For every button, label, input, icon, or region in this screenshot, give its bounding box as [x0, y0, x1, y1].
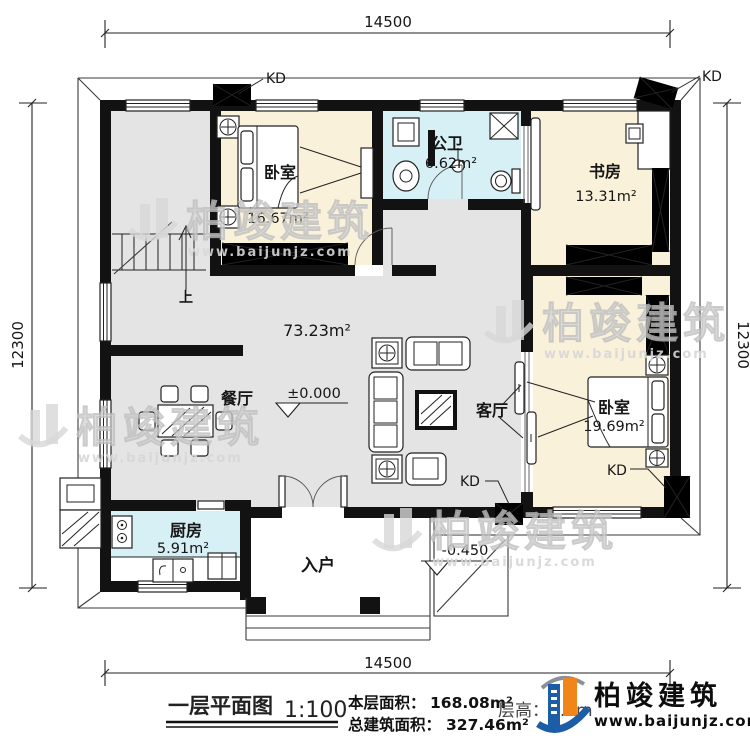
study-closet-south — [566, 245, 652, 265]
svg-text:柏竣建筑: 柏竣建筑 — [430, 507, 618, 556]
plan-scale: 1:100 — [284, 698, 347, 723]
pillow — [241, 131, 253, 164]
stairs-up-label: 上 — [179, 290, 193, 306]
kitchen-area: 5.91m² — [157, 541, 209, 557]
dim-bottom: 14500 — [364, 654, 412, 672]
window-dining-left-upper — [100, 283, 111, 341]
svg-text:www.baijunjz.com: www.baijunjz.com — [188, 245, 353, 260]
plant-table — [372, 455, 402, 483]
kd-label: KD — [607, 463, 627, 479]
study-closet-east — [652, 168, 669, 252]
study-area: 13.31m² — [575, 189, 636, 205]
svg-text:柏竣建筑: 柏竣建筑 — [542, 299, 730, 348]
plan-title: 一层平面图 — [168, 694, 273, 718]
sofa-three-seat — [369, 372, 403, 452]
window-stairhall — [126, 100, 190, 111]
bedroom2-area: 19.69m² — [583, 419, 644, 435]
level-value: ±0.000 — [287, 386, 341, 402]
watermark: 柏竣建筑 www.baijunjz.com — [20, 403, 264, 466]
dresser — [361, 148, 373, 198]
washbasin — [393, 161, 419, 191]
svg-text:柏竣建筑: 柏竣建筑 — [186, 197, 374, 246]
bathroom-name: 公卫 — [431, 134, 463, 153]
brand-site: www.baijunjz.com — [594, 712, 750, 730]
svg-text:www.baijunjz.com: www.baijunjz.com — [78, 451, 243, 466]
study-name: 书房 — [589, 162, 621, 181]
sofa-single — [406, 453, 446, 485]
bedroom2-closet-north — [566, 277, 642, 295]
plant-table — [372, 338, 402, 368]
dim-right: 12300 — [734, 321, 750, 369]
bathroom-area: 6.62m² — [425, 156, 477, 172]
washing-machine — [393, 118, 419, 146]
hall-area: 73.23m² — [283, 321, 351, 340]
floor-plan-drawing: 上 — [0, 0, 750, 741]
corridor-floor-patch — [428, 199, 468, 210]
pillow — [652, 381, 664, 410]
window-bathroom — [420, 100, 464, 111]
kd-marker-icon — [213, 84, 251, 106]
window-study — [563, 100, 637, 111]
dim-left: 12300 — [9, 321, 27, 369]
watermark: 柏竣建筑 www.baijunjz.com — [486, 299, 730, 362]
kd-marker-icon — [664, 476, 690, 518]
porch-column-left — [246, 597, 266, 614]
kd-label: KD — [460, 474, 480, 490]
bedroom2-name: 卧室 — [598, 398, 630, 417]
svg-text:www.baijunjz.com: www.baijunjz.com — [432, 555, 597, 570]
window-bedroom1 — [256, 100, 318, 111]
study-pocket-door — [524, 118, 540, 210]
sink — [153, 559, 193, 582]
entry-name: 入户 — [301, 555, 335, 576]
porch-column-right — [360, 597, 380, 614]
chair — [191, 386, 208, 402]
title-block: 一层平面图 1:100 本层面积： 168.08m² 总建筑面积： 327.46… — [166, 678, 750, 734]
bedroom1-name: 卧室 — [264, 163, 296, 182]
sofa-two-seat — [406, 337, 470, 370]
total-area-label: 总建筑面积： — [348, 715, 441, 734]
kitchen-sliding-door — [198, 501, 224, 509]
floor-area-label: 本层面积： — [348, 693, 426, 712]
svg-text:柏竣建筑: 柏竣建筑 — [76, 403, 264, 452]
chimney — [60, 478, 101, 548]
coffee-table — [417, 392, 455, 428]
toilet — [491, 169, 520, 193]
pillow — [652, 414, 664, 443]
floor-plan-sheet: 上 — [0, 0, 750, 741]
kd-label: KD — [266, 71, 286, 87]
brand-name: 柏竣建筑 — [594, 680, 722, 712]
window-kitchen-south — [138, 581, 187, 592]
kd-label: KD — [702, 69, 722, 85]
dim-top: 14500 — [364, 13, 412, 31]
svg-text:www.baijunjz.com: www.baijunjz.com — [544, 347, 709, 362]
chair — [161, 386, 178, 402]
kitchen-name: 厨房 — [170, 521, 202, 540]
